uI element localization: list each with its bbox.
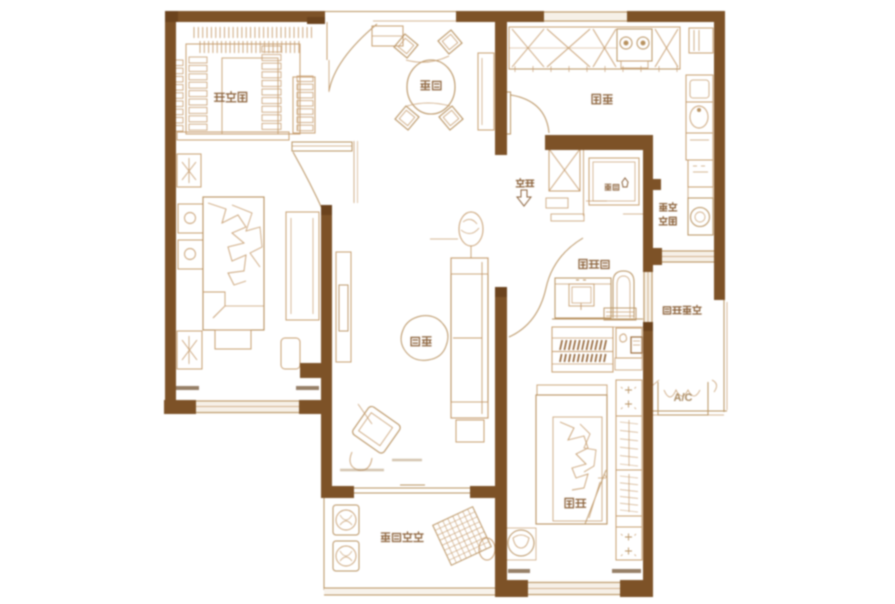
svg-text:A/C: A/C	[674, 392, 693, 404]
